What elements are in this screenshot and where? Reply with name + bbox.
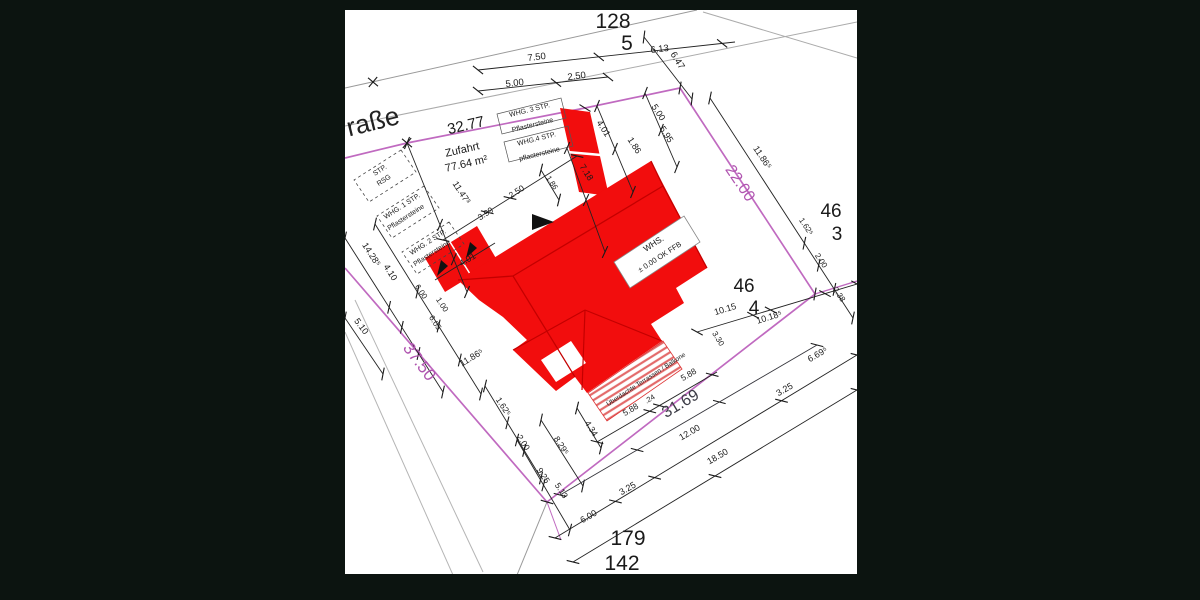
- dim-value: 6.13: [650, 43, 670, 56]
- parcel-number: 179: [610, 527, 645, 550]
- dim-value: 2.50: [567, 70, 587, 83]
- dim-value: 5.00: [505, 77, 525, 90]
- parcel-number: 128: [595, 10, 630, 33]
- parcel-number: 5: [621, 32, 633, 55]
- parcel-number: 46: [820, 201, 841, 222]
- site-plan-image: raße12857.506.135.002.506.4732.77Zufahrt…: [345, 0, 857, 600]
- parcel-number: 46: [733, 276, 754, 297]
- parcel-number: 3: [832, 224, 843, 245]
- letterboxed-plan-viewer: raße12857.506.135.002.506.4732.77Zufahrt…: [0, 0, 1200, 600]
- parcel-number: 142: [604, 552, 639, 575]
- site-plan-svg: raße12857.506.135.002.506.4732.77Zufahrt…: [345, 0, 857, 600]
- dim-value: 7.50: [527, 51, 547, 64]
